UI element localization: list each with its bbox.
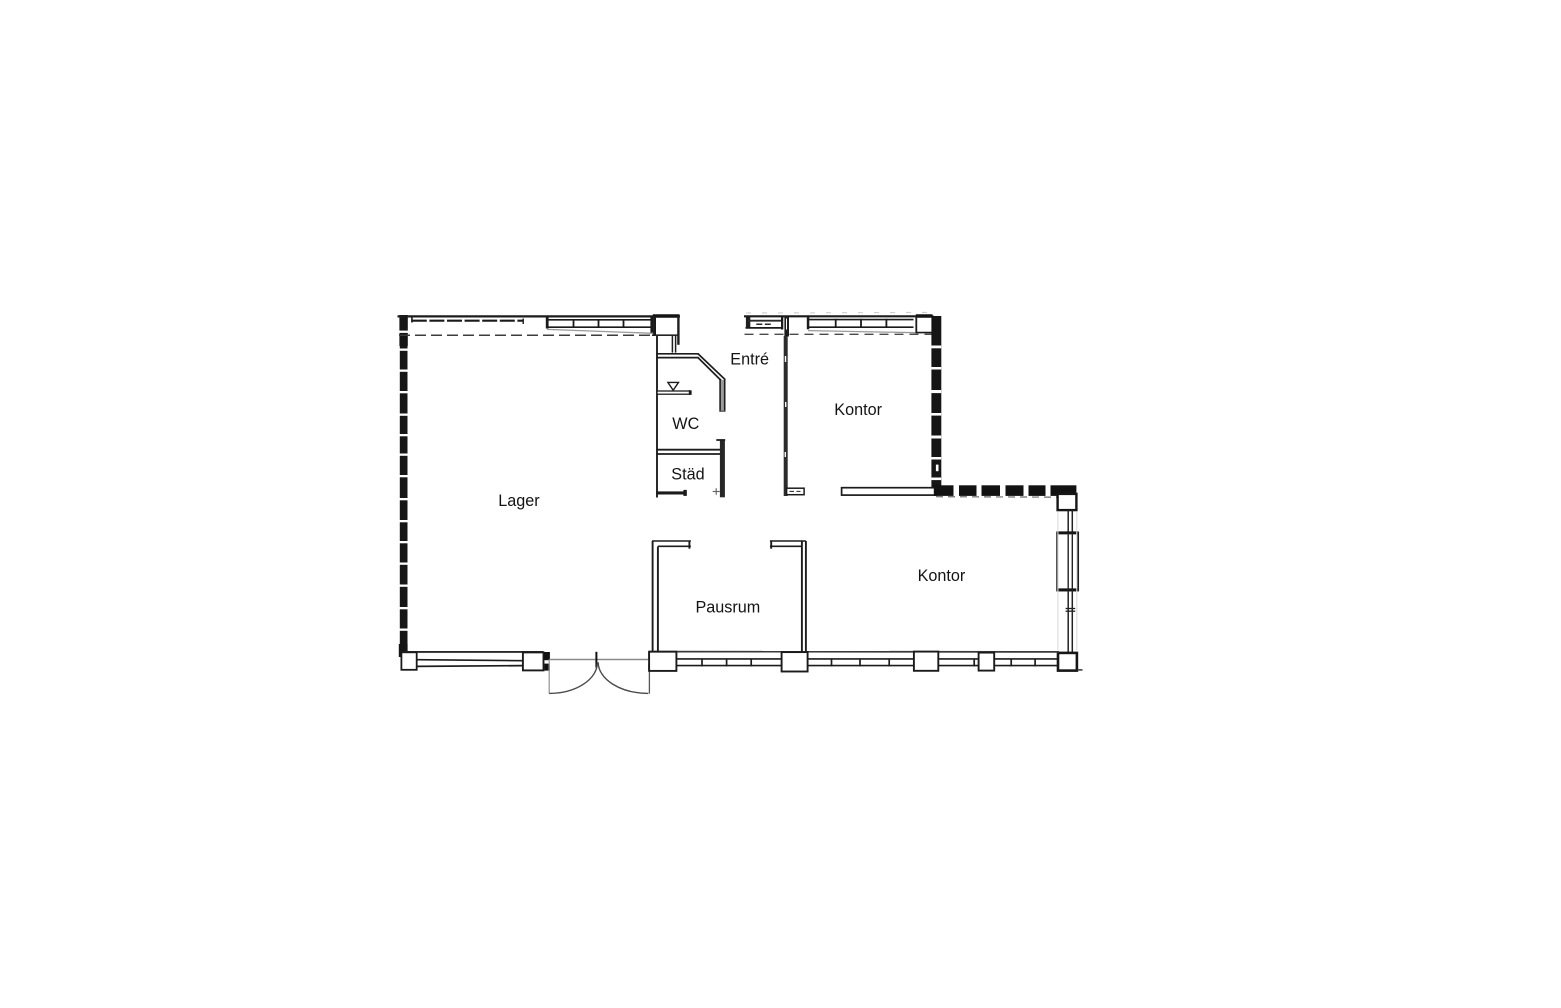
svg-text:WC: WC — [672, 415, 699, 433]
svg-text:Entré: Entré — [730, 351, 769, 369]
svg-text:Kontor: Kontor — [834, 401, 882, 419]
svg-text:Lager: Lager — [498, 492, 540, 510]
svg-text:Städ: Städ — [671, 465, 704, 483]
svg-text:Pausrum: Pausrum — [696, 599, 761, 617]
svg-text:Kontor: Kontor — [918, 567, 966, 585]
